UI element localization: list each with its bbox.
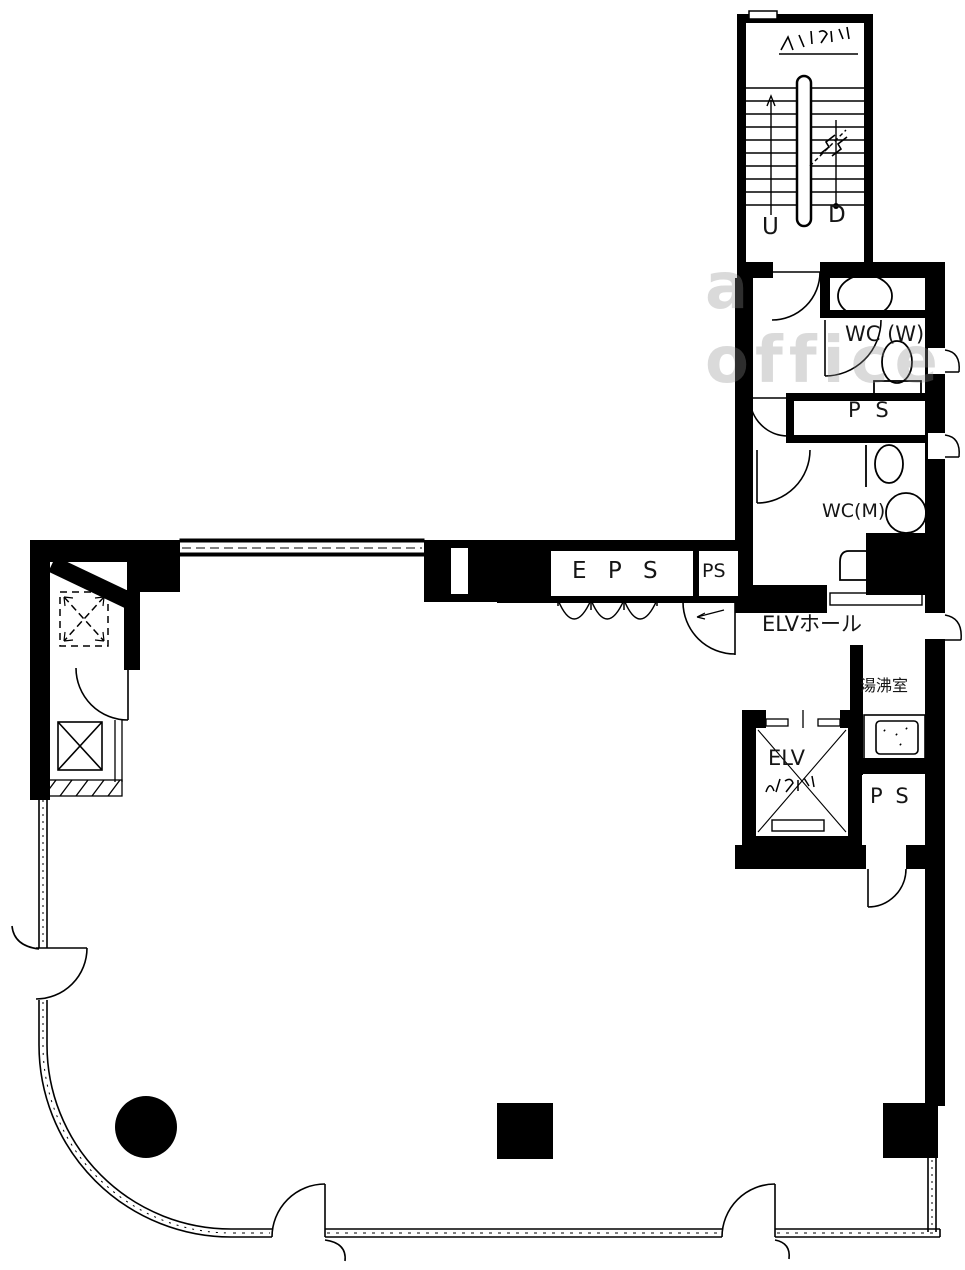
wc-m-door — [757, 450, 810, 503]
square-column-right — [883, 1103, 938, 1158]
room-label-ps-small: PS — [702, 562, 726, 581]
service-wing-walls — [735, 278, 945, 1106]
window-band — [180, 539, 424, 556]
room-label-eps: E P S — [572, 560, 665, 583]
room-label-ps-lower: P S — [870, 786, 912, 807]
main-entry-door-bottom-right — [722, 1184, 789, 1259]
elevator-note-scribble — [766, 776, 814, 792]
elevator-counterweight — [772, 820, 824, 831]
room-label-elv-hall: ELVホール — [762, 614, 862, 635]
handwritten-note-scribble — [779, 27, 858, 54]
left-annex — [30, 540, 140, 800]
round-basin-icon — [886, 493, 926, 533]
main-entry-door-bottom-left — [272, 1184, 345, 1261]
kitchen-sink-icon — [864, 715, 925, 760]
room-label-wc-m: WC(M) — [822, 502, 885, 521]
stair-top-notch — [749, 11, 777, 19]
main-entry-door-left — [12, 926, 87, 999]
annex-thin-wall — [115, 720, 122, 782]
top-wall-slot — [451, 548, 468, 594]
round-column — [115, 1096, 177, 1158]
floor-plan: a office U D WC (W) P S WC(M) E P S PS E… — [0, 0, 965, 1270]
ps-upper-door — [750, 398, 788, 436]
ceiling-opening-marker — [60, 592, 108, 646]
square-column-center — [497, 1103, 553, 1159]
stair-up-label: U — [762, 216, 779, 239]
watermark: a office — [705, 250, 965, 398]
elevator-shaft — [742, 710, 862, 852]
annex-hatched-wall — [38, 780, 122, 796]
stair-down-label: D — [828, 204, 846, 227]
annex-door-arc — [76, 668, 128, 720]
room-label-kitchenette: 湯沸室 — [860, 678, 908, 694]
room-label-elv: ELV — [768, 748, 805, 769]
stair-newel-wall — [797, 76, 811, 226]
room-label-ps-upper: P S — [848, 400, 893, 421]
columns — [115, 1096, 938, 1159]
shaft-box-marker — [58, 722, 102, 770]
room-label-wc-w: WC (W) — [845, 324, 924, 345]
hall-door-arc — [683, 600, 735, 655]
urinal-icon — [866, 445, 903, 487]
wing-bottom-door — [868, 869, 906, 907]
